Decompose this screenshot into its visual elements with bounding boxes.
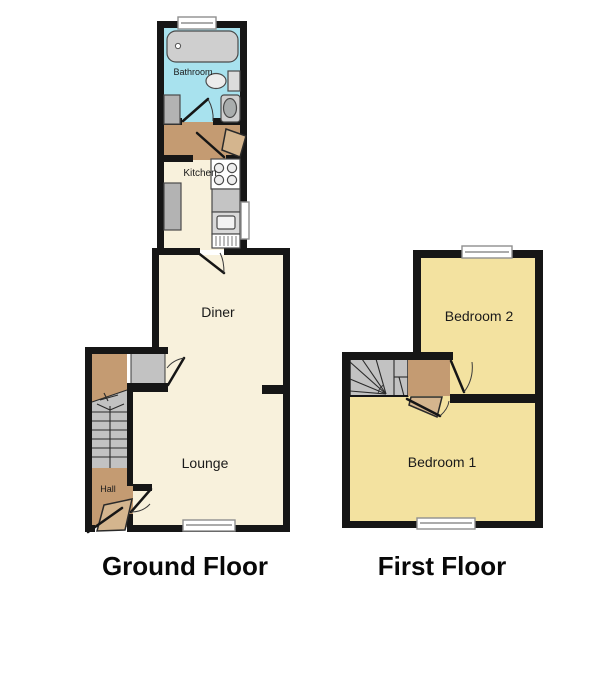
first-floor-staircase: [350, 359, 408, 396]
burner: [227, 163, 236, 172]
bathroom-label: Bathroom: [173, 67, 212, 77]
lounge-label: Lounge: [182, 455, 229, 471]
first-floor-landing: [408, 359, 450, 396]
ground-floor-plan: Bathroom Kitchen Diner Lounge Hall Groun…: [85, 17, 290, 581]
sink-basin: [224, 99, 237, 118]
cupboard: [131, 353, 165, 384]
diner-label: Diner: [201, 304, 235, 320]
floorplan-page: Bathroom Kitchen Diner Lounge Hall Groun…: [0, 0, 600, 681]
bathroom-cabinet: [164, 95, 180, 124]
bathtub-drain: [175, 43, 180, 48]
kitchen-label: Kitchen: [183, 168, 216, 179]
hall-label: Hall: [100, 484, 116, 494]
burner: [227, 175, 236, 184]
ground-floor-title: Ground Floor: [102, 551, 268, 581]
diner-floor: [159, 255, 283, 395]
ground-staircase: [92, 390, 127, 468]
fridge: [164, 183, 181, 230]
first-floor-plan: Bedroom 2 Bedroom 1 First Floor: [342, 246, 543, 581]
first-floor-title: First Floor: [378, 551, 507, 581]
floorplan-diagram: Bathroom Kitchen Diner Lounge Hall Groun…: [0, 0, 600, 681]
bedroom1-label: Bedroom 1: [408, 454, 477, 470]
kitchen-counter: [212, 189, 240, 212]
kitchen-window: [241, 202, 249, 239]
toilet-cistern: [228, 71, 240, 91]
bedroom2-label: Bedroom 2: [445, 308, 514, 324]
